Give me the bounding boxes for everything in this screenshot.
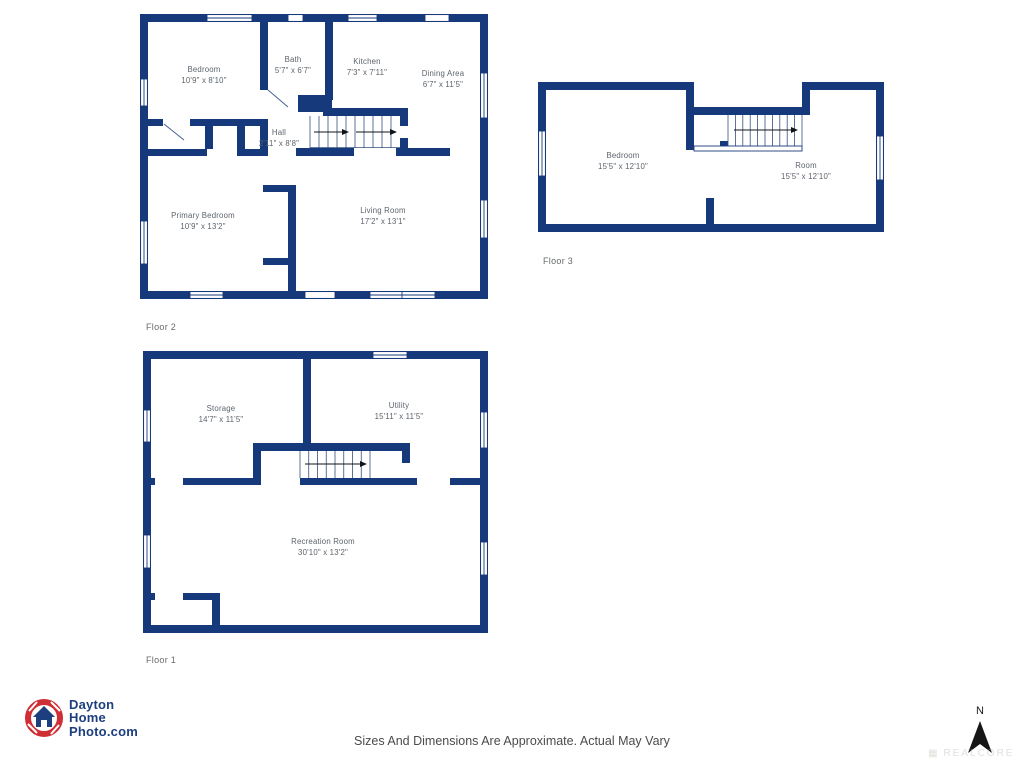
floor-1-stairs [300,451,370,478]
floor-3-plan: Bedroom 15'5" x 12'10" Room 15'5" x 12'1… [538,80,886,234]
north-label: N [960,706,1000,717]
room-dims-hall: 2'11" x 8'8" [259,139,299,148]
camera-shutter-house-icon [24,698,64,738]
provider-watermark: ▦ REALCORE [928,748,1014,759]
watermark-grid-icon: ▦ [928,748,939,759]
floor-2-walls [140,14,488,299]
room-dims-living: 17'2" x 13'1" [360,217,405,226]
room-label-utility: Utility [389,401,409,410]
room-label-primary: Primary Bedroom [171,211,235,220]
floor-3-room-labels: Bedroom 15'5" x 12'10" Room 15'5" x 12'1… [598,151,831,181]
room-label-storage: Storage [207,404,236,413]
floor-2-label: Floor 2 [146,322,176,332]
floorplan-page: Bedroom 10'9" x 8'10" Bath 5'7" x 6'7" K… [0,0,1024,768]
floor-3-stairs [694,115,802,151]
room-dims-primary: 10'9" x 13'2" [180,222,225,231]
room-dims-storage: 14'7" x 11'5" [199,415,244,424]
room-dims-dining: 6'7" x 11'5" [423,80,463,89]
room-label-bedroom: Bedroom [187,65,220,74]
logo-wordmark: Dayton Home Photo.com [69,698,138,738]
room-label-kitchen: Kitchen [353,57,380,66]
room-label-bedroom-f3: Bedroom [606,151,639,160]
logo-line-1: Dayton [69,698,138,711]
floor-3-label: Floor 3 [543,256,573,266]
room-label-dining: Dining Area [422,69,465,78]
dayton-home-photo-logo: Dayton Home Photo.com [24,698,138,738]
room-label-living: Living Room [360,206,406,215]
room-label-hall: Hall [272,128,286,137]
room-dims-bedroom-f3: 15'5" x 12'10" [598,162,648,171]
room-label-bath: Bath [285,55,302,64]
room-dims-bedroom: 10'9" x 8'10" [181,76,226,85]
room-label-recreation: Recreation Room [291,537,355,546]
floor-2-stairs [310,116,400,148]
room-dims-bath: 5'7" x 6'7" [275,66,311,75]
floor-2-room-labels: Bedroom 10'9" x 8'10" Bath 5'7" x 6'7" K… [171,55,465,231]
floor-1-label: Floor 1 [146,655,176,665]
logo-line-2: Home [69,711,138,724]
floor-3-windows [539,131,884,180]
floor-3-walls [538,82,884,232]
watermark-text: REALCORE [943,748,1014,759]
floor-1-plan: Storage 14'7" x 11'5" Utility 15'11" x 1… [143,350,488,634]
room-dims-utility: 15'11" x 11'5" [375,412,424,421]
disclaimer-text: Sizes And Dimensions Are Approximate. Ac… [0,734,1024,748]
floor-1-walls [143,351,488,633]
floor-2-windows [141,15,488,299]
room-label-room-f3: Room [795,161,817,170]
room-dims-kitchen: 7'3" x 7'11" [347,68,387,77]
room-dims-recreation: 30'10" x 13'2" [298,548,348,557]
room-dims-room-f3: 15'5" x 12'10" [781,172,831,181]
floor-2-plan: Bedroom 10'9" x 8'10" Bath 5'7" x 6'7" K… [140,12,488,300]
